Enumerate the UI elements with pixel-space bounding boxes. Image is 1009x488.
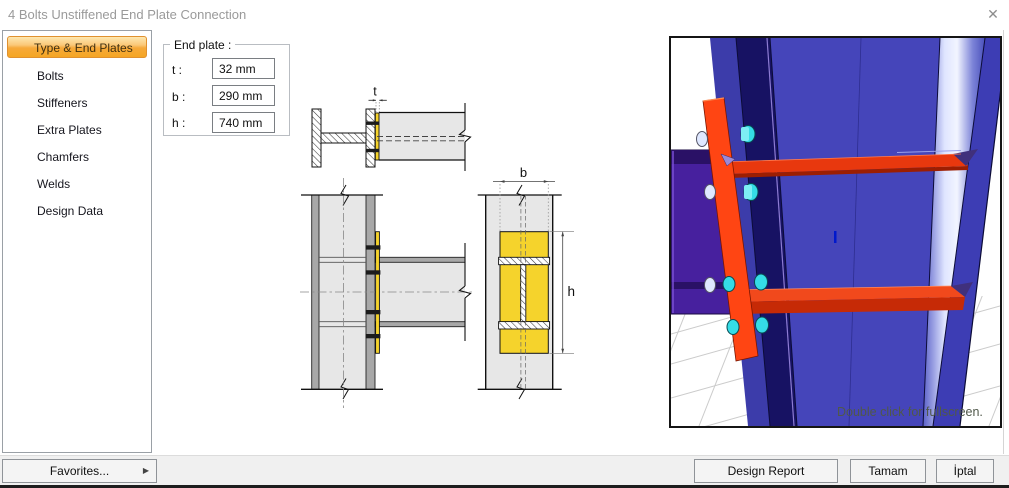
end-view-drawing: b h — [478, 165, 575, 399]
t-thickness-input[interactable] — [212, 58, 275, 79]
cancel-button[interactable]: İptal — [936, 459, 994, 483]
dialog-title: 4 Bolts Unstiffened End Plate Connection — [8, 7, 246, 22]
close-icon[interactable]: ✕ — [982, 4, 1004, 24]
sidebar-item-stiffeners[interactable]: Stiffeners — [3, 94, 151, 112]
elevation-drawing — [300, 178, 474, 408]
b-field-label: b : — [172, 90, 198, 104]
panel-divider — [1003, 30, 1004, 454]
b-width-input[interactable] — [212, 85, 275, 106]
favorites-arrow-icon: ▶ — [143, 460, 149, 482]
title-bar: 4 Bolts Unstiffened End Plate Connection… — [0, 0, 1009, 28]
h-dimension-label: h — [568, 284, 576, 299]
h-field-label: h : — [172, 116, 198, 130]
sidebar: Type & End Plates Bolts Stiffeners Extra… — [2, 30, 152, 453]
dialog-window: 4 Bolts Unstiffened End Plate Connection… — [0, 0, 1009, 488]
sidebar-item-bolts[interactable]: Bolts — [3, 67, 151, 85]
3d-viewport[interactable]: Double click for fullscreen. — [669, 36, 1002, 428]
selection-cursor-mark — [834, 231, 837, 243]
sidebar-item-welds[interactable]: Welds — [3, 175, 151, 193]
favorites-button-label: Favorites... — [50, 464, 109, 478]
viewport-hint-text: Double click for fullscreen. — [837, 405, 983, 419]
t-dimension-label: t — [373, 85, 377, 99]
ok-button[interactable]: Tamam — [850, 459, 926, 483]
t-field-label: t : — [172, 63, 198, 77]
sidebar-item-chamfers[interactable]: Chamfers — [3, 148, 151, 166]
design-report-button[interactable]: Design Report — [694, 459, 838, 483]
sidebar-item-extra-plates[interactable]: Extra Plates — [3, 121, 151, 139]
b-dimension-label: b — [520, 165, 527, 180]
blue-beam — [710, 38, 1000, 426]
favorites-button[interactable]: Favorites... ▶ — [2, 459, 157, 483]
end-plate-group-label: End plate : — [170, 38, 235, 52]
sidebar-item-type-end-plates[interactable]: Type & End Plates — [7, 36, 147, 58]
technical-drawing: t — [290, 82, 590, 417]
h-height-input[interactable] — [212, 112, 275, 133]
plan-view-drawing: t — [312, 85, 471, 172]
3d-render: Double click for fullscreen. — [671, 38, 1000, 426]
sidebar-item-design-data[interactable]: Design Data — [3, 202, 151, 220]
